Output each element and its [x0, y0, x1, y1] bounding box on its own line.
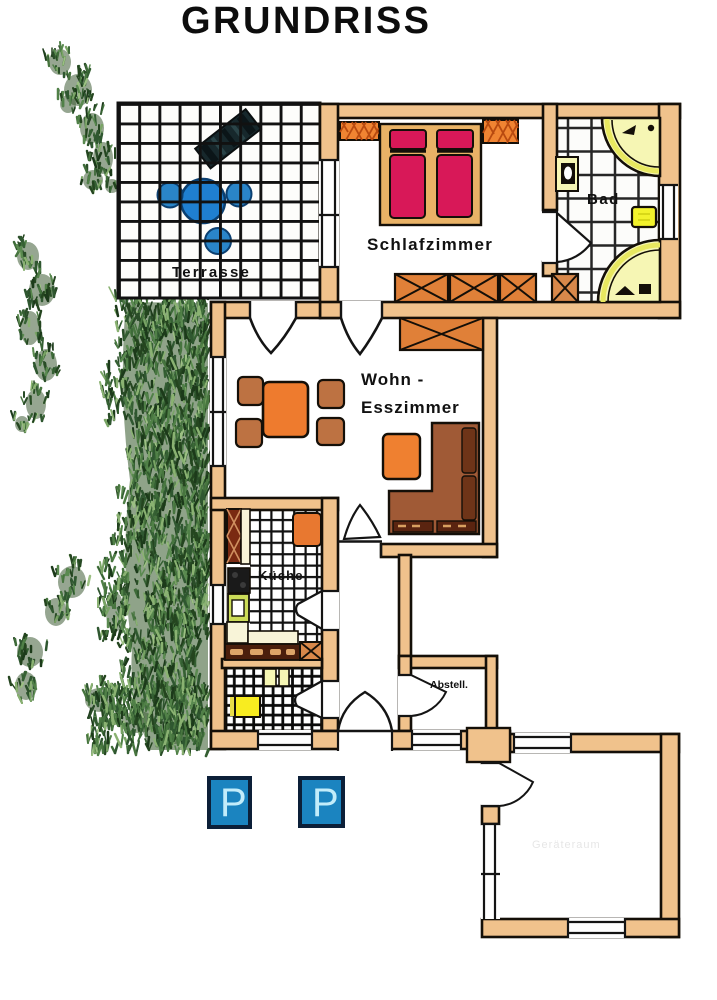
svg-text:Terrasse: Terrasse [172, 264, 251, 281]
svg-text:P: P [312, 781, 339, 825]
svg-text:P: P [220, 781, 247, 825]
svg-text:Bad: Bad [587, 191, 620, 208]
svg-text:Küche: Küche [258, 568, 304, 583]
svg-text:GRUNDRISS: GRUNDRISS [181, 0, 432, 42]
svg-text:Wohn -: Wohn - [361, 370, 424, 389]
svg-text:Abstell.: Abstell. [430, 679, 468, 691]
svg-text:Esszimmer: Esszimmer [361, 398, 460, 417]
svg-text:Geräteraum: Geräteraum [532, 839, 601, 851]
svg-text:Schlafzimmer: Schlafzimmer [367, 235, 493, 254]
